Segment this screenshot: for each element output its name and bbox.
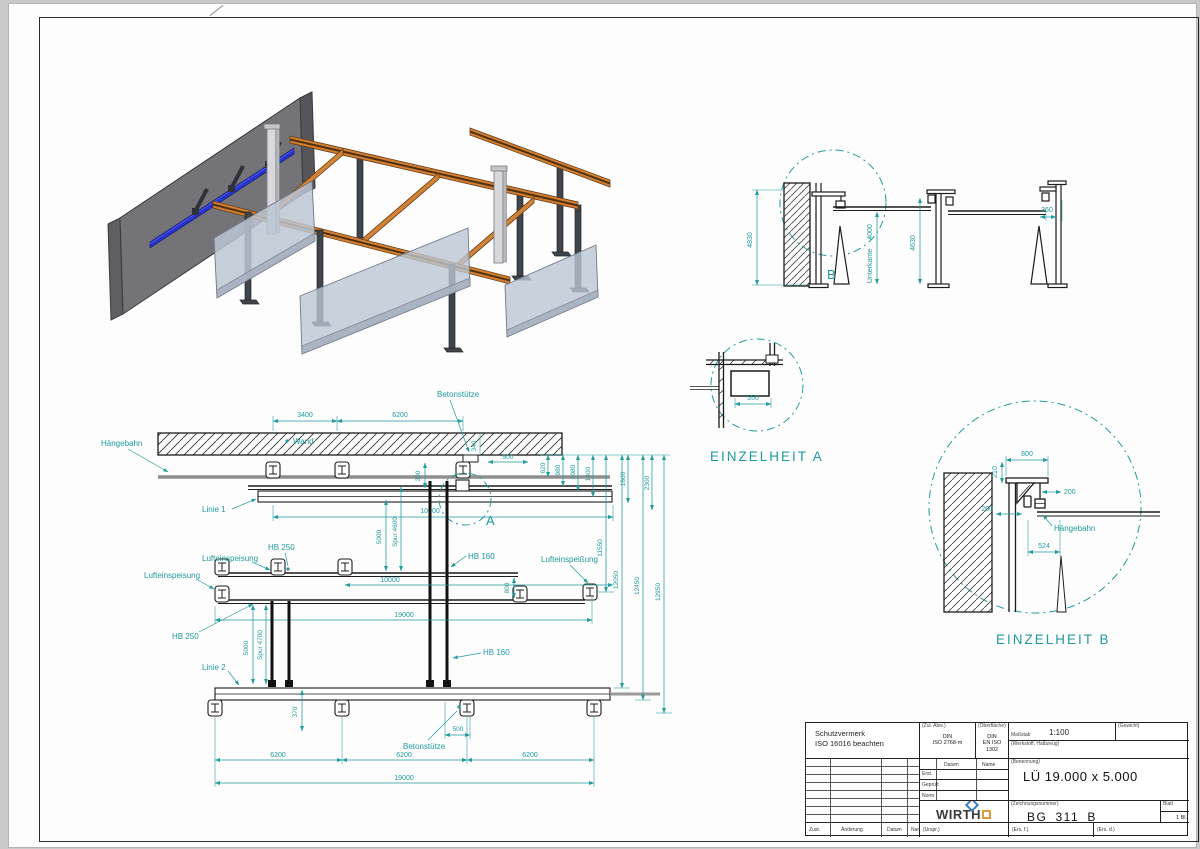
dim-200-left: 200 — [981, 506, 993, 513]
dim-1080: 1080 — [570, 464, 577, 479]
blatt-header: Blatt — [1161, 801, 1189, 808]
urspr-label: (Urspr.) — [920, 823, 1008, 833]
schutzvermerk-cell: Schutzvermerk ISO 16016 beachten — [806, 723, 920, 759]
plan-line-m1 — [218, 573, 518, 577]
plan-linie2-beam — [215, 688, 610, 700]
zeichnungsnummer-value: BG_311_B — [1009, 808, 1160, 824]
dim-19000-1: 19000 — [394, 612, 414, 619]
dim-spur4600: Spur 4600 — [392, 517, 399, 547]
label-betonstuetze-bottom: Betonstütze — [403, 742, 446, 751]
dim-360: 360 — [1041, 207, 1053, 214]
oberflaeche-value2: EN ISO 1302 — [976, 740, 1008, 753]
massstab-cell: Maßstab 1:100 — [1009, 723, 1116, 741]
logo-square-icon — [982, 810, 991, 819]
dim-6200-a: 6200 — [270, 752, 286, 759]
plan-bottom-dimensions: 6200 6200 6200 19000 — [215, 717, 594, 787]
oberflaeche-header: (Oberfläche) — [976, 723, 1008, 730]
dim-370: 370 — [292, 706, 299, 717]
plan-track-hb160-2 — [268, 601, 293, 687]
gewicht-cell: (Gewicht) — [1116, 723, 1189, 741]
dim-4830: 4830 — [747, 232, 754, 248]
aenderung-label: Änderung — [838, 823, 863, 833]
label-lufteinspeisung-2: Lufteinspeisung — [144, 571, 200, 580]
detail-a-structure — [690, 343, 783, 428]
dim-500-top: 500 — [503, 454, 514, 461]
revision-header-row: Zust. Änderung Datum Name — [806, 823, 920, 837]
plan-view: Wand 3400 6200 Betonstütze 500 340 Hänge… — [85, 385, 690, 805]
ers-d-label: (Ers. d.) — [1094, 823, 1189, 833]
label-hb250-2: HB 250 — [172, 632, 199, 641]
name-header: Name — [982, 762, 995, 768]
zeichnungsnummer-cell: (Zeichnungsnummer) BG_311_B — [1009, 801, 1161, 823]
dim-524: 524 — [1038, 543, 1050, 550]
detail-b-title: EINZELHEIT B — [996, 632, 1111, 647]
oberflaeche-cell: (Oberfläche) DIN EN ISO 1302 — [976, 723, 1009, 759]
dim-1800: 1800 — [620, 471, 627, 486]
dim-4000: 4000 — [867, 224, 874, 240]
company-logo-cell: WIRTHGMBH — [920, 801, 1009, 823]
plan-wall — [158, 433, 562, 462]
dim-300: 300 — [415, 470, 422, 481]
dim-800: 800 — [504, 582, 511, 593]
label-hb160-2: HB 160 — [483, 648, 510, 657]
zul-abw-header: (Zul. Abw.) — [920, 723, 975, 730]
benennung-value: LÜ 19.000 x 5.000 — [1009, 766, 1189, 784]
label-wand: Wand — [293, 437, 314, 446]
approval-rows: Datum Name Erst. Geprüft Norm — [920, 759, 1009, 801]
ers-d-cell: (Ers. d.) — [1094, 823, 1189, 837]
datum-label-2: Datum — [884, 823, 902, 833]
label-linie2: Linie 2 — [202, 663, 226, 672]
dim-200-right: 200 — [1064, 489, 1076, 496]
datum-header: Datum — [944, 762, 959, 768]
dim-980: 980 — [555, 464, 562, 475]
detail-a-dimension: 550 — [735, 395, 771, 408]
dim-340: 340 — [471, 440, 478, 451]
detail-b-view: 800 210 200 200 524 Hängebahn EINZELHEIT… — [918, 388, 1163, 653]
dim-2300: 2300 — [644, 475, 651, 490]
werkstoff-cell: (Werkstoff, Halbzeug) — [1009, 741, 1189, 759]
urspr-cell: (Urspr.) — [920, 823, 1009, 837]
detail-b-structure — [1006, 478, 1160, 612]
dim-12050: 12050 — [613, 571, 620, 589]
dim-5000-2: 5000 — [243, 640, 250, 655]
section-wall — [784, 183, 810, 286]
section-view: 4830 4000 Unterkante 4630 360 B — [730, 138, 1135, 338]
section-structure — [809, 181, 1067, 288]
fold-mark — [209, 5, 223, 16]
dim-10000-2: 10000 — [380, 577, 400, 584]
zul-abw-value2: ISO 2768-m — [920, 740, 975, 747]
dim-550: 550 — [747, 395, 759, 402]
detail-mark-b: B — [827, 267, 836, 282]
dim-1400: 1400 — [585, 466, 592, 481]
dim-6200-top: 6200 — [392, 412, 408, 419]
zust-label: Zust. — [806, 823, 820, 833]
blatt-value: 1 Bl. — [1176, 815, 1187, 821]
dim-5000-1: 5000 — [376, 529, 383, 544]
label-linie1: Linie 1 — [202, 505, 226, 514]
gewicht-header: (Gewicht) — [1116, 723, 1189, 730]
dim-11550: 11550 — [597, 539, 604, 557]
company-logo: WIRTHGMBH — [920, 801, 1008, 823]
label-betonstuetze-top: Betonstütze — [437, 390, 480, 399]
detail-mark-a: A — [486, 513, 495, 528]
benennung-cell: (Benennung) LÜ 19.000 x 5.000 — [1009, 759, 1189, 801]
dim-4630: 4630 — [910, 235, 917, 251]
ers-f-label: (Ers. f.) — [1009, 823, 1093, 833]
row-norm: Norm — [920, 791, 1009, 801]
dim-6200-b: 6200 — [396, 752, 412, 759]
schutzvermerk-line2: ISO 16016 beachten — [815, 739, 919, 749]
row-erst: Erst. — [920, 769, 1009, 780]
label-lufteinspeissung: Lufteinspeißung — [541, 555, 598, 564]
dim-800: 800 — [1021, 451, 1033, 458]
name-label-2: Name — [908, 823, 920, 833]
blatt-header-cell: Blatt — [1161, 801, 1189, 812]
blatt-value-cell: 1 Bl. — [1161, 812, 1189, 823]
dim-500-bottom: 500 — [453, 726, 464, 733]
dim-19000-2: 19000 — [394, 775, 414, 782]
label-lufteinspeisung-1: Lufteinspeisung — [202, 554, 258, 563]
zul-abw-cell: (Zul. Abw.) DIN ISO 2768-m — [920, 723, 976, 759]
drawing-sheet-page: { "meta": { "accent_teal": "#1f9b9d", "l… — [0, 0, 1200, 849]
dim-620: 620 — [540, 462, 547, 473]
label-hb250-1: HB 250 — [268, 543, 295, 552]
dim-12950: 12950 — [655, 583, 662, 601]
dim-3400: 3400 — [297, 412, 313, 419]
label-haengebahn: Hängebahn — [101, 439, 142, 448]
detail-b-wall — [944, 473, 992, 612]
dim-12450: 12450 — [634, 577, 641, 595]
detail-a-view: 550 EINZELHEIT A — [688, 330, 873, 475]
dim-6200-c: 6200 — [522, 752, 538, 759]
title-block: Schutzvermerk ISO 16016 beachten Zust. Ä… — [805, 722, 1188, 836]
isometric-view — [60, 75, 640, 365]
detail-a-title: EINZELHEIT A — [710, 449, 824, 464]
label-haengebahn-detail: Hängebahn — [1054, 524, 1095, 533]
massstab-header: Maßstab — [1009, 732, 1030, 739]
dim-spur4700: Spur 4700 — [257, 630, 264, 660]
schutzvermerk-line1: Schutzvermerk — [815, 729, 919, 739]
massstab-value: 1:100 — [1049, 728, 1069, 737]
werkstoff-header: (Werkstoff, Halbzeug) — [1009, 741, 1189, 748]
dim-unterkante: Unterkante — [867, 249, 874, 283]
plan-linie1-beam — [258, 491, 612, 502]
ers-f-cell: (Ers. f.) — [1009, 823, 1094, 837]
label-hb160-1: HB 160 — [468, 552, 495, 561]
row-geprueft: Geprüft — [920, 780, 1009, 791]
revision-table — [806, 759, 920, 823]
dim-210: 210 — [992, 466, 999, 478]
